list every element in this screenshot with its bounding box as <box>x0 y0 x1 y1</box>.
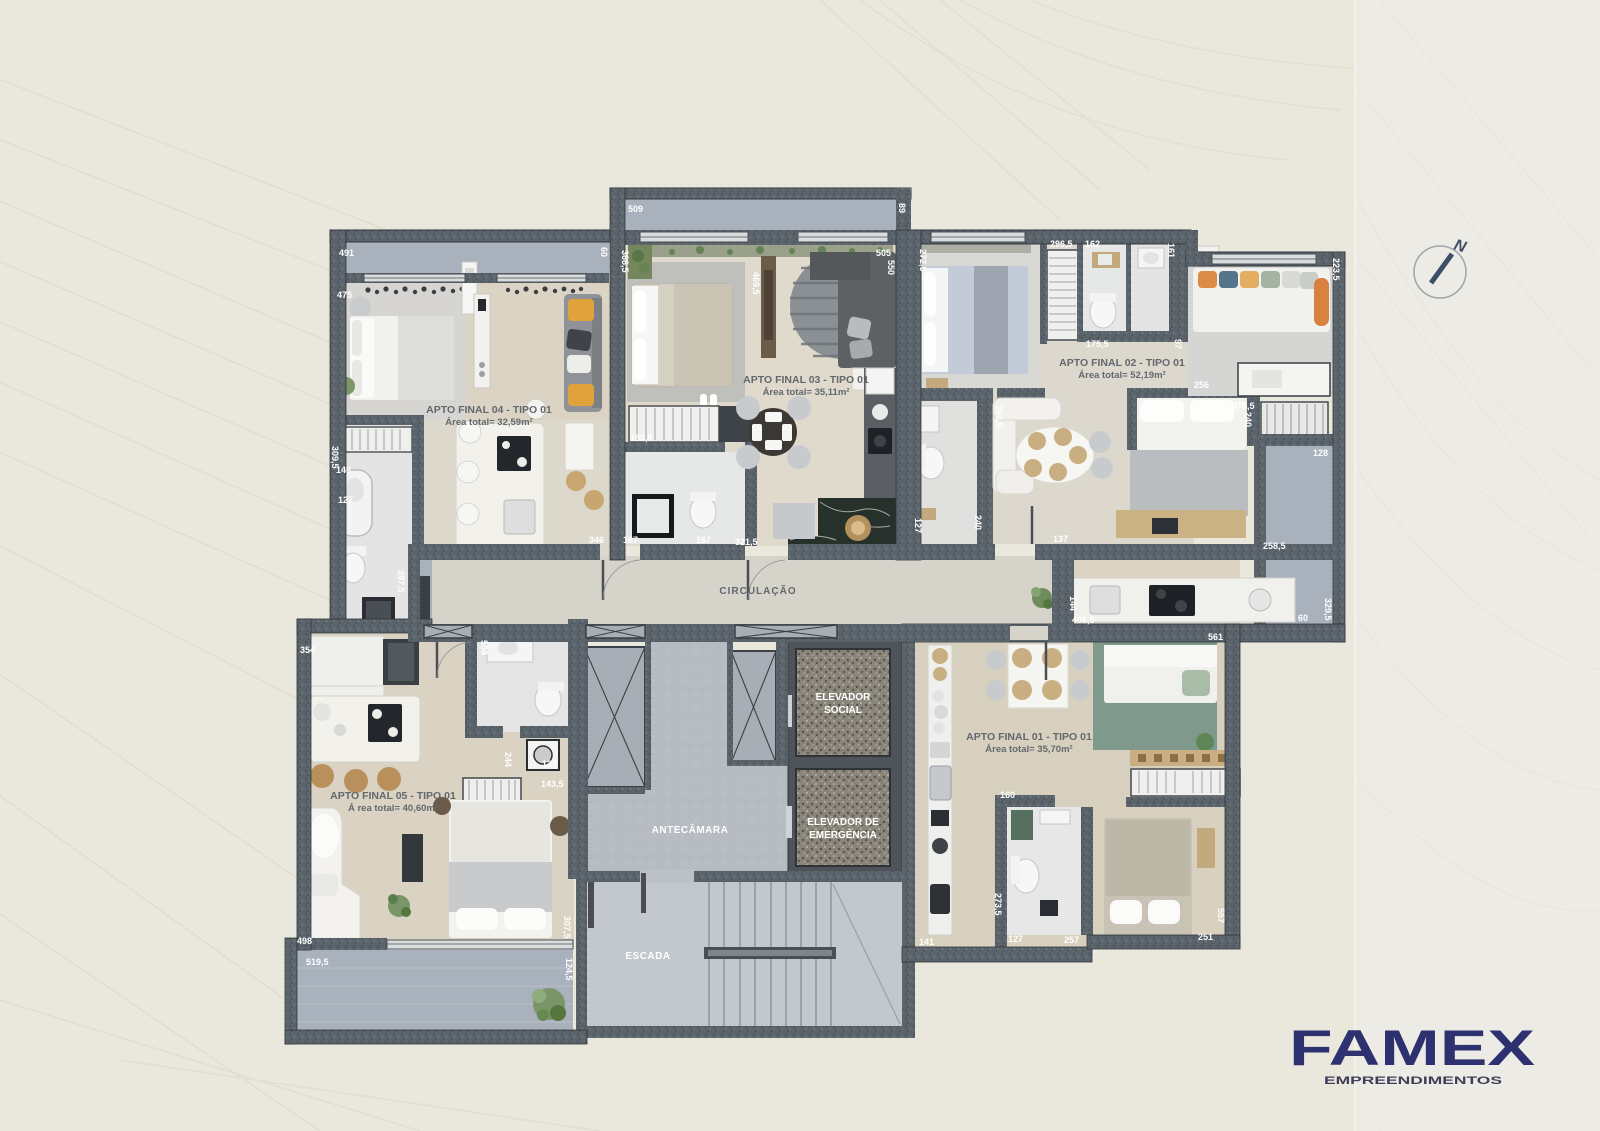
svg-text:124,5: 124,5 <box>564 958 574 981</box>
svg-text:ESCADA: ESCADA <box>625 951 670 962</box>
svg-text:509: 509 <box>628 204 643 214</box>
svg-text:223,5: 223,5 <box>1331 258 1341 281</box>
svg-text:559: 559 <box>479 640 489 655</box>
svg-text:175,5: 175,5 <box>1086 339 1109 349</box>
svg-text:APTO FINAL 05 - TIPO 01: APTO FINAL 05 - TIPO 01 <box>330 790 456 802</box>
svg-text:273,5: 273,5 <box>993 893 1003 916</box>
svg-text:167: 167 <box>623 535 638 545</box>
svg-text:183,5: 183,5 <box>630 433 653 443</box>
svg-text:EMPREENDIMENTOS: EMPREENDIMENTOS <box>1324 1075 1502 1087</box>
svg-text:256: 256 <box>1194 380 1209 390</box>
svg-text:519,5: 519,5 <box>306 957 329 967</box>
svg-text:244: 244 <box>503 752 513 767</box>
svg-text:469,5: 469,5 <box>751 272 761 295</box>
svg-text:491: 491 <box>339 248 354 258</box>
svg-text:257: 257 <box>1064 935 1079 945</box>
svg-text:475,5: 475,5 <box>1232 401 1255 411</box>
svg-text:Á rea total= 40,60m²: Á rea total= 40,60m² <box>348 803 438 814</box>
svg-text:APTO FINAL 03 - TIPO 01: APTO FINAL 03 - TIPO 01 <box>743 374 869 386</box>
svg-text:143,5: 143,5 <box>541 779 564 789</box>
svg-text:141: 141 <box>919 937 934 947</box>
svg-text:ANTECÂMARA: ANTECÂMARA <box>652 823 729 836</box>
svg-text:354: 354 <box>300 645 315 655</box>
svg-text:127: 127 <box>1008 934 1023 944</box>
svg-text:Área total= 35,11m²: Área total= 35,11m² <box>763 387 850 398</box>
svg-text:144: 144 <box>1068 596 1078 611</box>
svg-text:505: 505 <box>876 248 891 258</box>
svg-text:240: 240 <box>973 515 983 530</box>
svg-text:162: 162 <box>1085 239 1100 249</box>
svg-text:60: 60 <box>1298 613 1308 623</box>
svg-text:Área total= 35,70m²: Área total= 35,70m² <box>985 744 1072 755</box>
svg-text:346: 346 <box>589 535 604 545</box>
svg-text:127: 127 <box>542 759 557 769</box>
svg-text:146: 146 <box>336 465 351 475</box>
svg-text:FAMEX: FAMEX <box>1289 1020 1535 1076</box>
svg-text:161: 161 <box>1166 243 1176 258</box>
svg-text:97: 97 <box>1173 339 1183 349</box>
svg-text:263,5: 263,5 <box>994 405 1004 428</box>
svg-text:60: 60 <box>599 247 609 257</box>
svg-text:329,5: 329,5 <box>1323 598 1333 621</box>
svg-text:258,5: 258,5 <box>1263 541 1286 551</box>
svg-text:APTO FINAL 01 - TIPO 01: APTO FINAL 01 - TIPO 01 <box>966 731 1092 743</box>
svg-text:APTO FINAL 04 - TIPO 01: APTO FINAL 04 - TIPO 01 <box>426 404 552 416</box>
svg-text:160: 160 <box>1000 790 1015 800</box>
svg-text:Área total= 32,59m²: Área total= 32,59m² <box>445 417 532 428</box>
svg-text:498: 498 <box>297 936 312 946</box>
svg-text:127: 127 <box>913 518 923 533</box>
svg-text:128: 128 <box>1313 448 1328 458</box>
svg-text:SOCIAL: SOCIAL <box>824 705 862 716</box>
svg-text:287,5: 287,5 <box>396 570 406 593</box>
svg-text:251: 251 <box>1198 932 1213 942</box>
svg-text:89: 89 <box>897 203 907 213</box>
svg-text:APTO FINAL 02 - TIPO 01: APTO FINAL 02 - TIPO 01 <box>1059 357 1185 369</box>
svg-text:ELEVADOR DE: ELEVADOR DE <box>807 817 879 828</box>
svg-text:296,5: 296,5 <box>1050 239 1073 249</box>
svg-text:321,5: 321,5 <box>735 537 758 547</box>
svg-text:127: 127 <box>338 495 353 505</box>
svg-text:167: 167 <box>696 535 711 545</box>
svg-text:137: 137 <box>1053 534 1068 544</box>
svg-text:561: 561 <box>1208 632 1223 642</box>
svg-text:CIRCULAÇÃO: CIRCULAÇÃO <box>719 584 796 597</box>
svg-text:Área total= 52,19m²: Área total= 52,19m² <box>1078 370 1165 381</box>
svg-text:EMERGÊNCIA: EMERGÊNCIA <box>809 828 877 841</box>
svg-text:307,5: 307,5 <box>562 916 572 939</box>
svg-text:557: 557 <box>1216 908 1226 923</box>
svg-text:475: 475 <box>337 290 352 300</box>
svg-text:366,5: 366,5 <box>620 250 630 273</box>
svg-text:406,5: 406,5 <box>1072 615 1095 625</box>
svg-text:272,5: 272,5 <box>918 249 928 272</box>
svg-text:240: 240 <box>1243 412 1253 427</box>
svg-text:ELEVADOR: ELEVADOR <box>816 692 872 703</box>
svg-text:550: 550 <box>886 260 896 275</box>
